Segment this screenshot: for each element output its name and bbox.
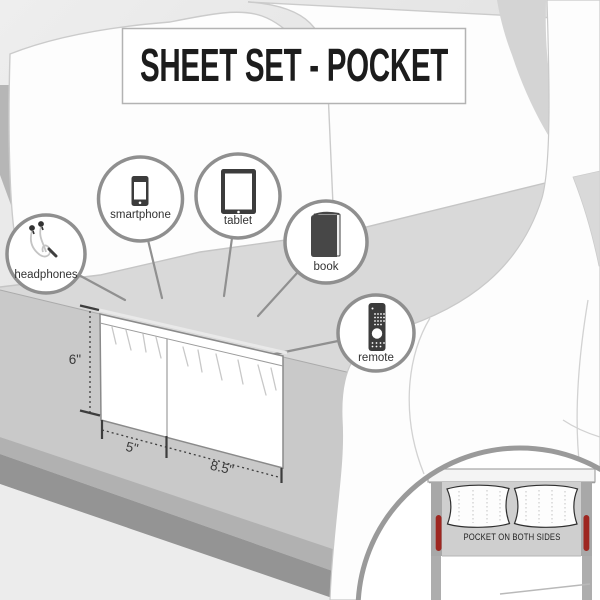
book-icon (311, 213, 340, 257)
inset-leg-left (431, 556, 441, 600)
pocket-height-label: 6" (69, 352, 82, 367)
callout-label: tablet (224, 215, 253, 227)
sheet-set-pocket-infographic: 6" 5" 8.5" headphones (0, 0, 600, 600)
inset-headboard (428, 469, 595, 482)
callout-label: book (314, 261, 339, 273)
callout-label: smartphone (110, 209, 171, 221)
callout-headphones: headphones (7, 215, 85, 293)
smartphone-icon (132, 176, 149, 206)
tablet-icon (221, 169, 256, 214)
inset-pillow-right (515, 485, 578, 527)
pocket-marker-left (436, 515, 442, 551)
remote-icon (369, 303, 386, 351)
callout-tablet: tablet (196, 154, 280, 238)
callout-smartphone: smartphone (99, 157, 183, 241)
page-title: SHEET SET - POCKET (140, 39, 448, 91)
inset-leg-right (582, 556, 592, 600)
pocket-marker-right (584, 515, 590, 551)
callout-label: remote (358, 352, 394, 364)
title-box: SHEET SET - POCKET (123, 29, 466, 104)
infographic-canvas: 6" 5" 8.5" headphones (0, 0, 600, 600)
callout-label: headphones (14, 269, 78, 281)
inset-caption: POCKET ON BOTH SIDES (464, 532, 561, 543)
callout-remote: remote (338, 295, 414, 371)
callout-book: book (285, 201, 367, 283)
callout-circle (7, 215, 85, 293)
